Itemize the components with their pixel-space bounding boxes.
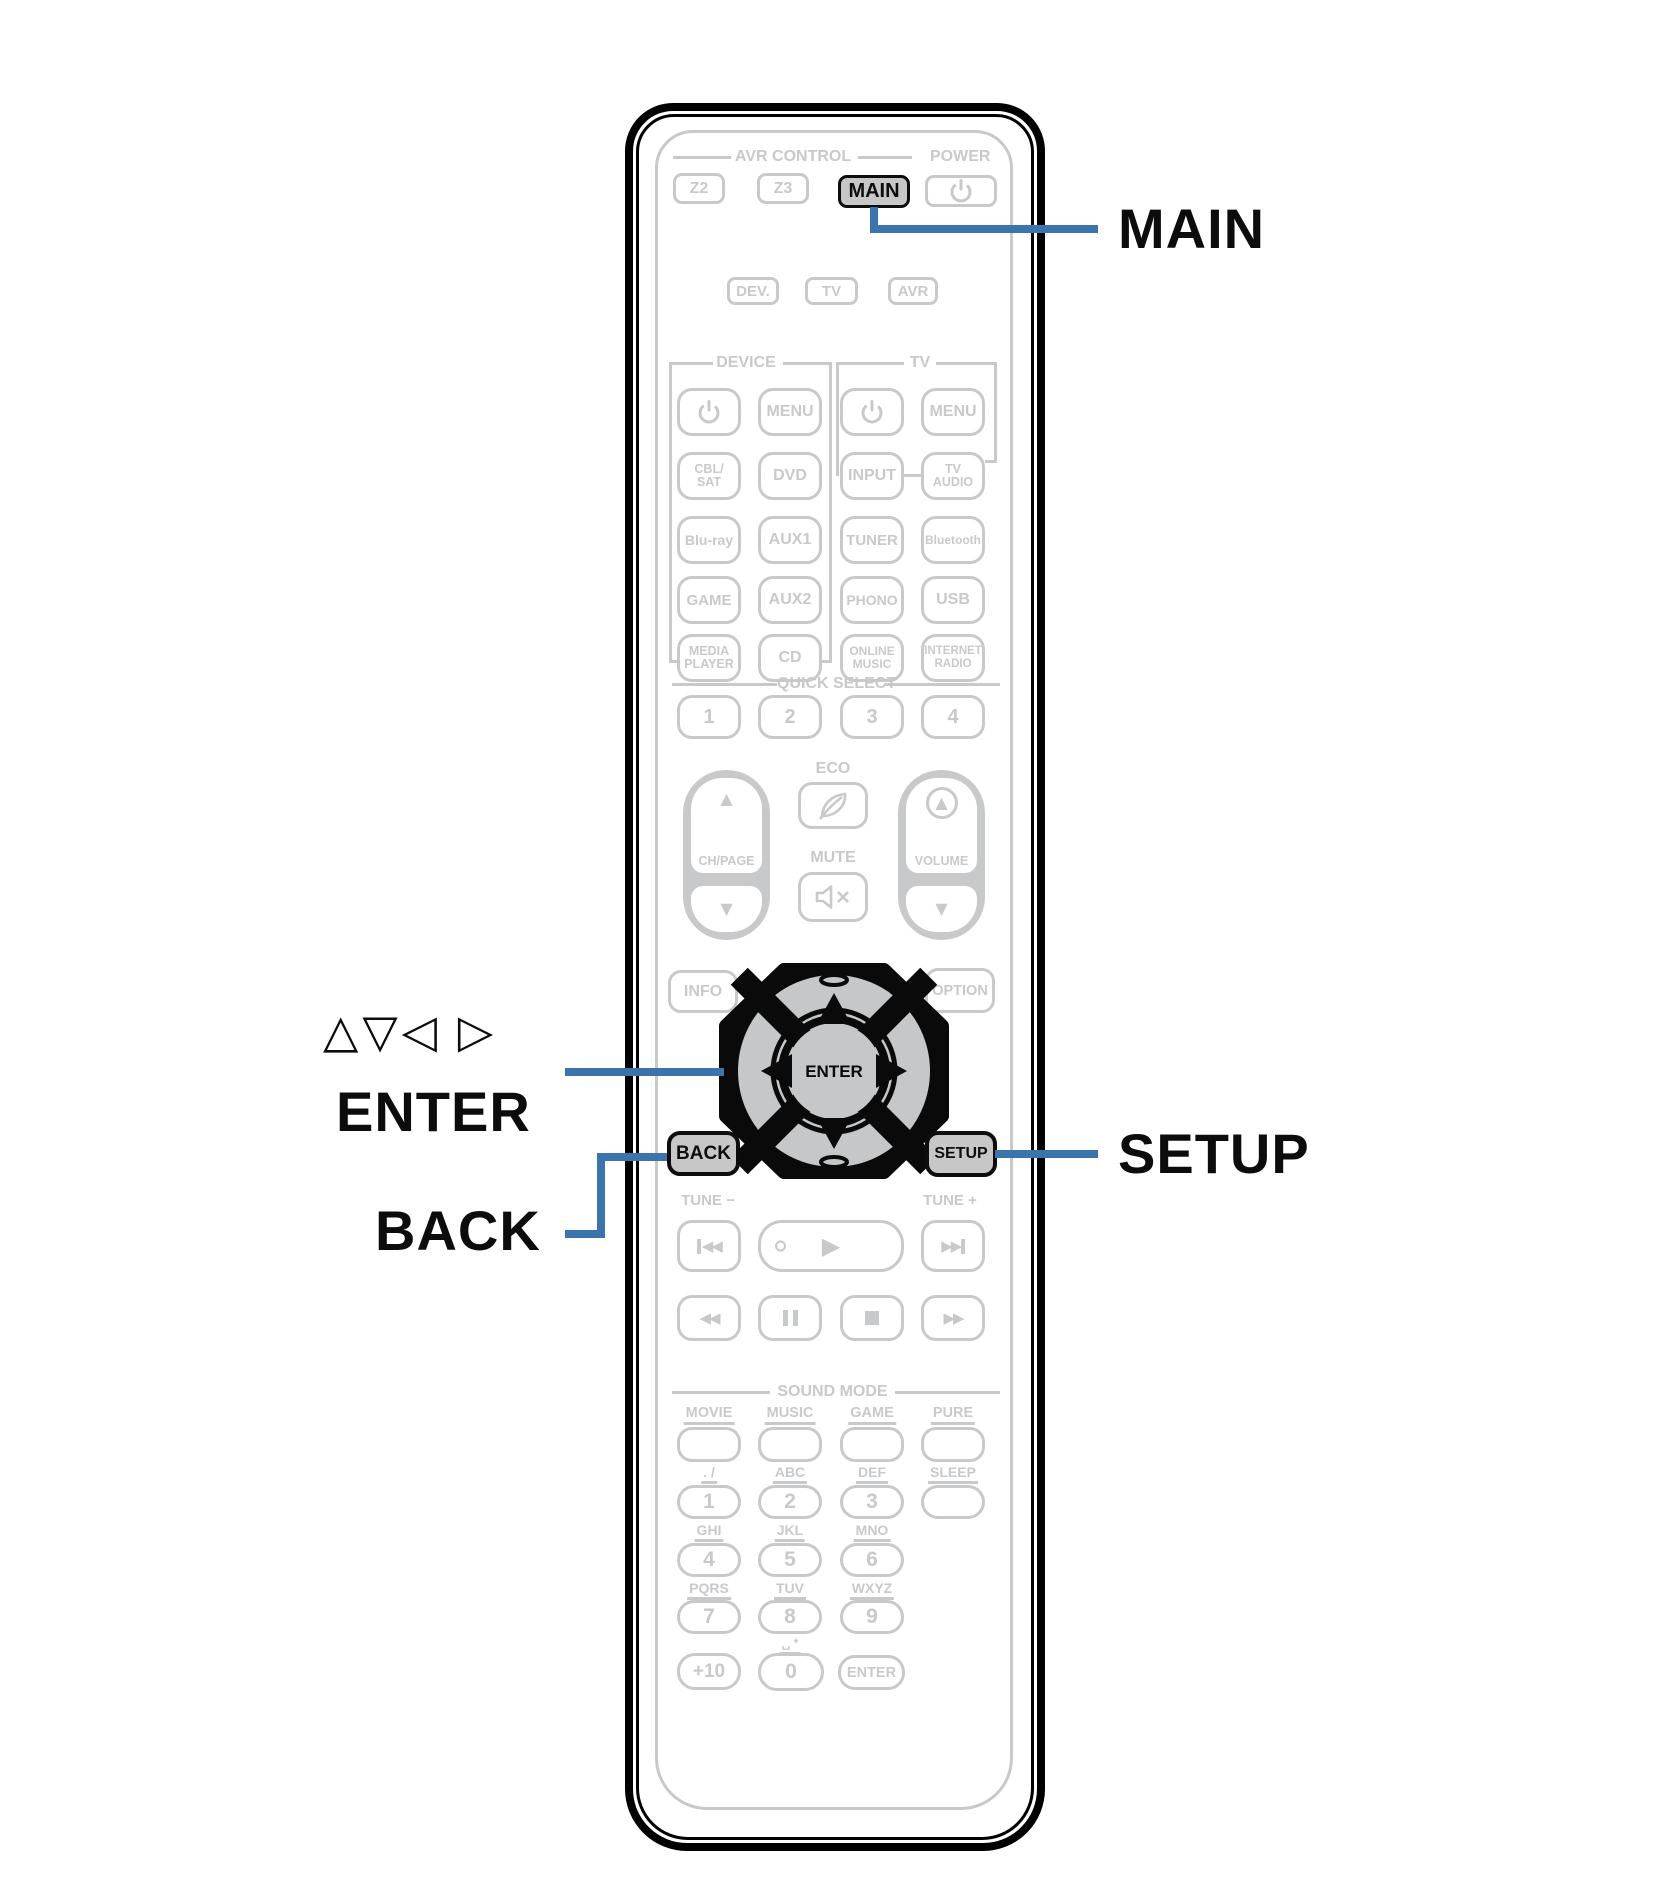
manual-diagram: AVR CONTROL POWER Z2 Z3 MAIN DEV. TV AVR… xyxy=(0,0,1665,1878)
digit-3-button[interactable]: 3 xyxy=(840,1485,904,1519)
tune-minus-label: TUNE − xyxy=(673,1193,743,1209)
skip-back-bar xyxy=(697,1239,701,1254)
quick-select-line-left xyxy=(672,683,777,686)
input-tvaudio-connector xyxy=(904,474,921,477)
aux1-button[interactable]: AUX1 xyxy=(758,516,822,564)
media-player-button[interactable]: MEDIA PLAYER xyxy=(677,634,741,682)
channel-up-button[interactable]: ▲ CH/PAGE xyxy=(691,778,762,873)
tv-bracket-line-left xyxy=(838,362,904,365)
volume-down-button[interactable]: ▼ xyxy=(906,886,977,932)
device-bracket-line-left xyxy=(669,362,713,365)
channel-down-button[interactable]: ▼ xyxy=(691,886,762,932)
letters-9-label: WXYZ xyxy=(850,1581,894,1600)
tuner-button[interactable]: TUNER xyxy=(840,516,904,564)
bluetooth-button[interactable]: Bluetooth xyxy=(921,516,985,564)
pause-button[interactable] xyxy=(758,1295,822,1341)
down-triangle-icon: ▼ xyxy=(720,901,732,917)
tv-bracket-right-hook xyxy=(985,460,997,463)
enter-callout-line xyxy=(565,1068,724,1076)
sleep-button[interactable] xyxy=(921,1485,985,1519)
setup-button[interactable]: SETUP xyxy=(925,1131,997,1177)
dvd-button[interactable]: DVD xyxy=(758,452,822,500)
fast-forward-button[interactable]: ▶▶ xyxy=(921,1295,985,1341)
phono-button[interactable]: PHONO xyxy=(840,576,904,624)
letters-5-label: JKL xyxy=(775,1523,805,1542)
tv-bracket-left-vertical xyxy=(836,362,839,476)
tv-bracket-line-right xyxy=(936,362,997,365)
letters-6-label: MNO xyxy=(854,1523,891,1542)
cursor-arrows-callout-label: △▽◁ ▷ xyxy=(323,1006,497,1056)
pause-icon xyxy=(793,1310,798,1326)
digit-2-button[interactable]: 2 xyxy=(758,1485,822,1519)
digit-7-button[interactable]: 7 xyxy=(677,1600,741,1634)
sound-mode-label: SOUND MODE xyxy=(775,1384,890,1400)
blu-ray-button[interactable]: Blu-ray xyxy=(677,516,741,564)
game-sound-button[interactable] xyxy=(840,1427,904,1462)
rewind-button[interactable]: ◀◀ xyxy=(677,1295,741,1341)
skip-back-icon: ◀◀ xyxy=(702,1239,721,1254)
power-label: POWER xyxy=(930,149,988,165)
mute-speaker-icon xyxy=(814,884,852,910)
zone2-button[interactable]: Z2 xyxy=(673,173,725,204)
quick-select-1-button[interactable]: 1 xyxy=(677,695,741,739)
pure-button[interactable] xyxy=(921,1427,985,1462)
skip-forward-button[interactable]: ▶▶ xyxy=(921,1220,985,1272)
device-bracket-line-right xyxy=(783,362,832,365)
ch-page-label: CH/PAGE xyxy=(698,855,754,868)
internet-radio-button[interactable]: INTERNET RADIO xyxy=(921,634,985,682)
input-button[interactable]: INPUT xyxy=(840,452,904,500)
mute-button[interactable] xyxy=(798,872,868,922)
channel-page-rocker: ▲ CH/PAGE ▼ xyxy=(683,770,770,940)
tv-audio-button[interactable]: TV AUDIO xyxy=(921,452,985,500)
down-triangle-icon: ▼ xyxy=(935,901,947,917)
setup-callout-line xyxy=(995,1150,1098,1158)
remote-control: AVR CONTROL POWER Z2 Z3 MAIN DEV. TV AVR… xyxy=(625,103,1045,1851)
digit-6-button[interactable]: 6 xyxy=(840,1543,904,1577)
game-button[interactable]: GAME xyxy=(677,576,741,624)
digit-1-button[interactable]: 1 xyxy=(677,1485,741,1519)
eco-button[interactable] xyxy=(798,782,868,829)
enter-callout-label: ENTER xyxy=(336,1084,531,1140)
pad-top-notch xyxy=(821,975,847,985)
sound-mode-line-left xyxy=(672,1391,770,1394)
power-icon xyxy=(697,399,721,425)
pause-icon xyxy=(783,1310,788,1326)
usb-button[interactable]: USB xyxy=(921,576,985,624)
main-callout-line xyxy=(870,225,1098,233)
digit-9-button[interactable]: 9 xyxy=(840,1600,904,1634)
letters-8-label: TUV xyxy=(774,1581,806,1600)
tv-mode-button[interactable]: TV xyxy=(805,277,858,305)
power-button[interactable] xyxy=(925,175,997,207)
eco-label: ECO xyxy=(798,761,868,777)
avr-control-label: AVR CONTROL xyxy=(735,149,845,165)
power-icon xyxy=(949,178,973,204)
cbl-sat-button[interactable]: CBL/ SAT xyxy=(677,452,741,500)
pad-bottom-notch xyxy=(821,1157,847,1167)
enter-button-label: ENTER xyxy=(805,1062,863,1081)
main-callout-label: MAIN xyxy=(1118,201,1265,257)
back-callout-line xyxy=(597,1153,667,1161)
up-triangle-icon: ▲ xyxy=(935,795,947,811)
stop-icon xyxy=(865,1311,879,1325)
rewind-icon: ◀◀ xyxy=(699,1311,718,1326)
game-sound-label: GAME xyxy=(848,1406,896,1425)
device-bracket-left-vertical xyxy=(669,362,672,663)
main-zone-button[interactable]: MAIN xyxy=(838,175,910,208)
quick-select-4-button[interactable]: 4 xyxy=(921,695,985,739)
power-icon xyxy=(860,399,884,425)
mute-label: MUTE xyxy=(798,850,868,866)
tv-section-label: TV xyxy=(906,355,934,371)
digit-4-button[interactable]: 4 xyxy=(677,1543,741,1577)
pure-label: PURE xyxy=(931,1406,975,1425)
tv-menu-button[interactable]: MENU xyxy=(921,388,985,436)
cursor-pad[interactable]: ENTER xyxy=(718,962,950,1180)
sleep-label: SLEEP xyxy=(928,1465,978,1484)
back-button[interactable]: BACK xyxy=(667,1131,740,1176)
letters-7-label: PQRS xyxy=(687,1581,731,1600)
record-dot-icon xyxy=(775,1241,786,1252)
letters-4-label: GHI xyxy=(695,1523,724,1542)
volume-label: VOLUME xyxy=(915,855,968,868)
movie-button[interactable] xyxy=(677,1427,741,1462)
back-callout-label: BACK xyxy=(375,1203,541,1259)
skip-forward-bar xyxy=(961,1239,965,1254)
tune-plus-label: TUNE + xyxy=(915,1193,985,1209)
music-label: MUSIC xyxy=(765,1406,816,1425)
aux2-button[interactable]: AUX2 xyxy=(758,576,822,624)
avr-control-dash-left xyxy=(673,156,731,159)
skip-forward-icon: ▶▶ xyxy=(941,1239,960,1254)
up-triangle-icon: ▲ xyxy=(720,791,732,807)
quick-select-3-button[interactable]: 3 xyxy=(840,695,904,739)
letters-1-label: . / xyxy=(701,1465,717,1484)
play-icon: ▶ xyxy=(822,1234,840,1258)
device-bracket-right-hook xyxy=(822,660,832,663)
music-button[interactable] xyxy=(758,1427,822,1462)
quick-select-label: QUICK SELECT xyxy=(777,676,887,692)
avr-control-dash-right xyxy=(858,156,912,159)
digit-0-button[interactable]: 0 xyxy=(758,1653,824,1691)
device-section-label: DEVICE xyxy=(713,355,779,371)
enter-number-button[interactable]: ENTER xyxy=(838,1655,905,1690)
zone3-button[interactable]: Z3 xyxy=(757,173,809,204)
back-callout-line xyxy=(597,1153,605,1238)
eco-leaf-icon xyxy=(816,790,850,822)
device-menu-button[interactable]: MENU xyxy=(758,388,822,436)
dev-mode-button[interactable]: DEV. xyxy=(727,277,779,305)
tv-bracket-right-vertical xyxy=(994,362,997,463)
digit-5-button[interactable]: 5 xyxy=(758,1543,822,1577)
play-button[interactable]: ▶ xyxy=(758,1220,904,1272)
avr-mode-button[interactable]: AVR xyxy=(888,277,938,305)
back-callout-line xyxy=(565,1230,605,1238)
quick-select-2-button[interactable]: 2 xyxy=(758,695,822,739)
volume-rocker: ▲ VOLUME ▼ xyxy=(898,770,985,940)
quick-select-line-right xyxy=(884,683,1000,686)
sound-mode-line-right xyxy=(895,1391,1000,1394)
letters-2-label: ABC xyxy=(773,1465,807,1484)
movie-label: MOVIE xyxy=(684,1406,735,1425)
stop-button[interactable] xyxy=(840,1295,904,1341)
volume-up-circle: ▲ xyxy=(926,787,958,819)
device-power-button[interactable] xyxy=(677,388,741,436)
volume-up-button[interactable]: ▲ VOLUME xyxy=(906,778,977,873)
setup-callout-label: SETUP xyxy=(1118,1126,1310,1182)
device-bracket-right-vertical xyxy=(829,362,832,663)
fast-forward-icon: ▶▶ xyxy=(943,1311,962,1326)
digit-8-button[interactable]: 8 xyxy=(758,1600,822,1634)
letters-3-label: DEF xyxy=(856,1465,888,1484)
skip-back-button[interactable]: ◀◀ xyxy=(677,1220,741,1272)
tv-power-button[interactable] xyxy=(840,388,904,436)
plus10-button[interactable]: +10 xyxy=(677,1653,741,1690)
